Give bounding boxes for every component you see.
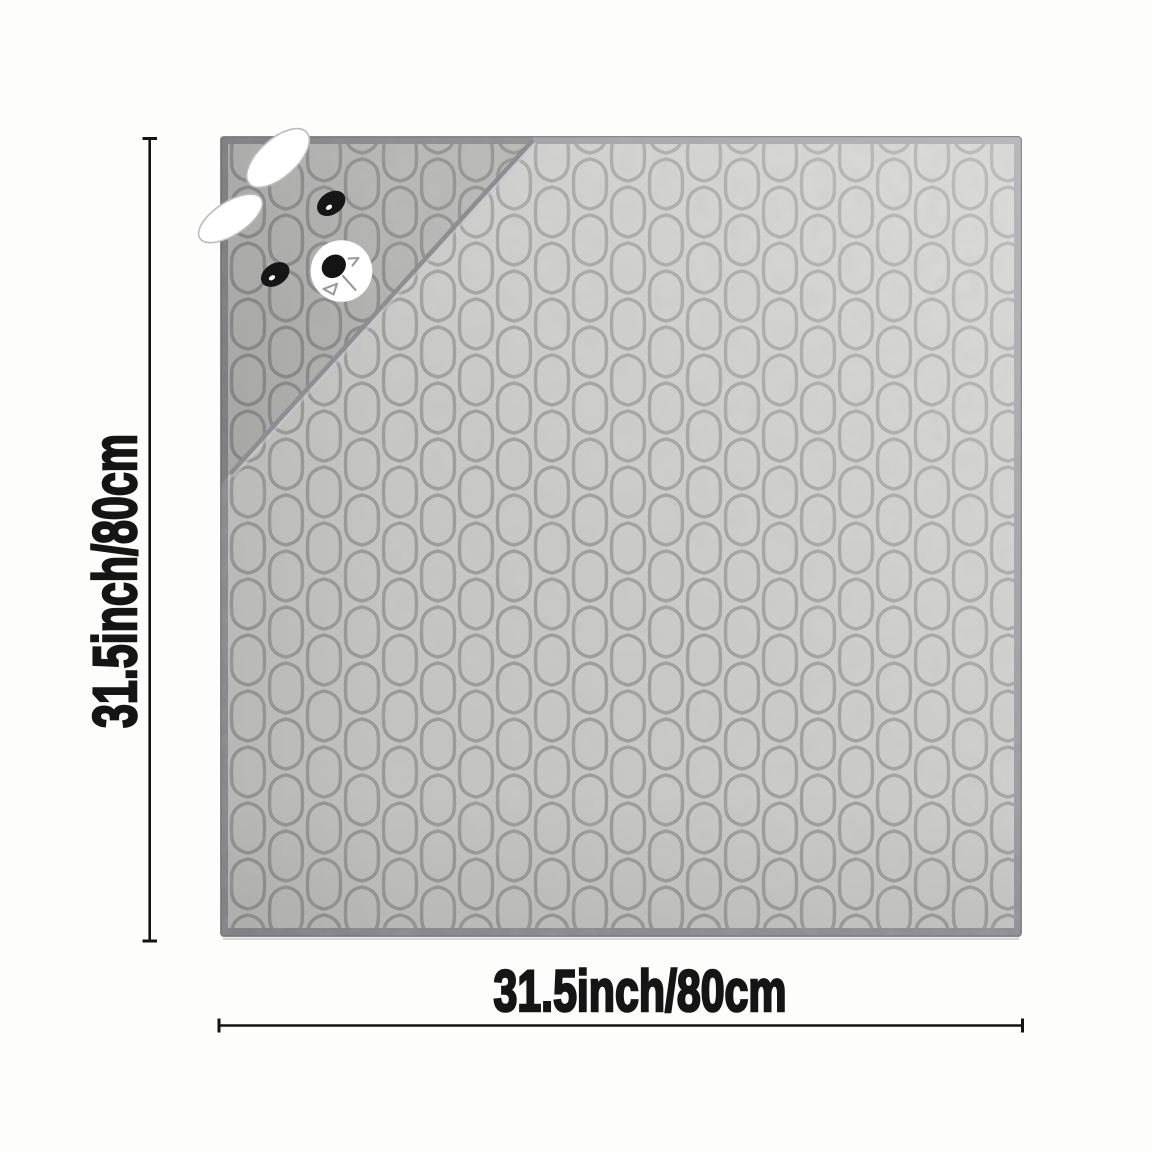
svg-text:31.5inch/80cm: 31.5inch/80cm <box>81 434 150 728</box>
svg-text:31.5inch/80cm: 31.5inch/80cm <box>494 959 787 1024</box>
